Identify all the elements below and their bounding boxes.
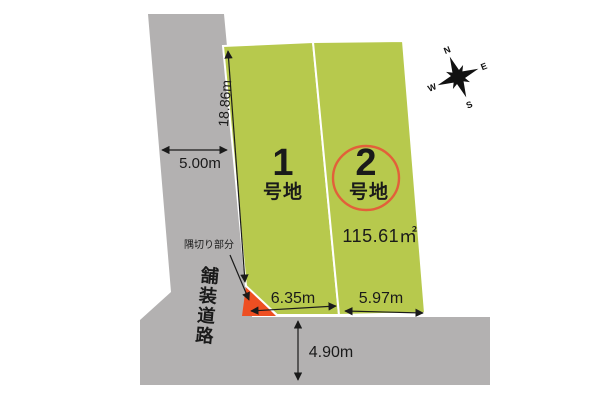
- compass-north-label: N: [442, 44, 452, 56]
- plot-2-area: 115.61㎡: [330, 227, 430, 246]
- plot-2-suffix: 号地: [329, 183, 409, 203]
- compass-west-label: W: [426, 81, 438, 94]
- corner-cut-label: 隅切り部分: [164, 241, 254, 252]
- lot-map: N E S W 18.86m 5.00m 隅切り部分 舗装道路 6.35m 5.…: [0, 0, 600, 400]
- dimension-plot2-frontage: 5.97m: [346, 291, 416, 308]
- compass-rose: N E S W: [415, 34, 499, 122]
- plot-2-number: 2: [326, 144, 406, 182]
- dimension-road-width-west: 5.00m: [165, 156, 235, 172]
- compass-south-label: S: [465, 99, 474, 111]
- dimension-road-width-south: 4.90m: [296, 345, 366, 362]
- compass-east-label: E: [479, 61, 488, 73]
- plot-1-number: 1: [243, 144, 323, 182]
- dimension-plot1-frontage: 6.35m: [258, 291, 328, 308]
- plot-1-suffix: 号地: [243, 183, 323, 203]
- compass-star-diagonal: [441, 60, 475, 94]
